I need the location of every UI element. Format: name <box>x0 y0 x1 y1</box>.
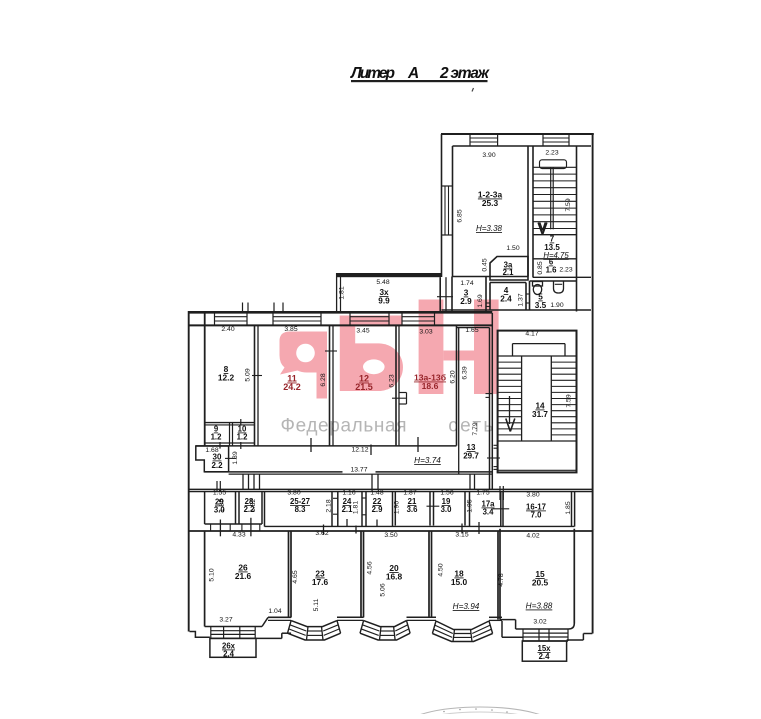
svg-text:4.65: 4.65 <box>292 570 299 583</box>
svg-text:1.90: 1.90 <box>394 501 401 514</box>
svg-text:1.2: 1.2 <box>211 433 223 442</box>
svg-text:H=3.38: H=3.38 <box>476 224 503 233</box>
svg-text:15.0: 15.0 <box>451 577 468 587</box>
svg-text:5.06: 5.06 <box>379 583 386 596</box>
svg-text:1.95: 1.95 <box>466 499 473 512</box>
svg-text:18.6: 18.6 <box>422 381 439 391</box>
svg-text:2.18: 2.18 <box>325 499 332 512</box>
svg-text:1.81: 1.81 <box>352 501 359 514</box>
svg-text:3.0: 3.0 <box>214 505 226 514</box>
svg-text:5.11: 5.11 <box>313 598 320 611</box>
svg-text:21.6: 21.6 <box>235 571 252 581</box>
svg-text:H=4.75: H=4.75 <box>543 251 569 260</box>
svg-text:2.4: 2.4 <box>500 295 512 304</box>
svg-text:4.17: 4.17 <box>525 331 538 338</box>
svg-text:2.9: 2.9 <box>460 297 472 306</box>
svg-text:1.37: 1.37 <box>517 293 524 306</box>
svg-text:3.80: 3.80 <box>287 490 300 497</box>
svg-text:1.56: 1.56 <box>440 490 453 497</box>
svg-text:1.85: 1.85 <box>565 501 572 514</box>
svg-text:9.9: 9.9 <box>378 296 390 305</box>
svg-text:5.10: 5.10 <box>208 568 215 581</box>
svg-text:25.3: 25.3 <box>482 198 499 208</box>
svg-text:3.80: 3.80 <box>526 492 539 499</box>
svg-text:29.7: 29.7 <box>463 452 479 461</box>
svg-text:1.65: 1.65 <box>465 327 478 334</box>
svg-text:6.23: 6.23 <box>388 374 395 387</box>
svg-text:2.9: 2.9 <box>372 505 384 514</box>
svg-text:2.2: 2.2 <box>244 505 256 514</box>
svg-text:7.0: 7.0 <box>531 511 543 520</box>
svg-text:6.20: 6.20 <box>449 370 456 383</box>
svg-text:6.28: 6.28 <box>320 373 327 386</box>
svg-text:Литер: Литер <box>350 65 395 82</box>
svg-text:1.75: 1.75 <box>476 490 489 497</box>
svg-text:13.77: 13.77 <box>350 466 367 473</box>
svg-text:5.09: 5.09 <box>245 368 252 381</box>
svg-text:4.02: 4.02 <box>526 533 539 540</box>
svg-text:4.50: 4.50 <box>437 563 444 576</box>
svg-text:3.62: 3.62 <box>315 530 328 537</box>
svg-text:7.59: 7.59 <box>565 198 572 211</box>
svg-text:2.1: 2.1 <box>503 268 515 277</box>
svg-text:6.85: 6.85 <box>456 209 463 222</box>
svg-text:4.78: 4.78 <box>498 573 505 586</box>
svg-text:7.79: 7.79 <box>472 422 479 435</box>
svg-text:31.7: 31.7 <box>532 410 548 419</box>
svg-text:А: А <box>407 65 419 82</box>
svg-text:2.23: 2.23 <box>559 267 572 274</box>
svg-text:24.2: 24.2 <box>283 382 301 392</box>
svg-text:20.5: 20.5 <box>532 578 549 588</box>
svg-text:2.40: 2.40 <box>221 326 234 333</box>
svg-text:1.2: 1.2 <box>237 433 249 442</box>
svg-text:3.45: 3.45 <box>356 328 369 335</box>
svg-text:0.85: 0.85 <box>537 261 544 274</box>
svg-text:16.8: 16.8 <box>386 572 403 582</box>
svg-text:1.81: 1.81 <box>338 286 345 299</box>
svg-text:3.5: 3.5 <box>535 301 547 310</box>
svg-text:1.04: 1.04 <box>268 608 281 615</box>
svg-text:2.23: 2.23 <box>545 150 558 157</box>
svg-text:H=3.74: H=3.74 <box>414 456 441 465</box>
svg-text:3.90: 3.90 <box>482 152 495 159</box>
svg-text:1.87: 1.87 <box>403 490 416 497</box>
svg-text:8.3: 8.3 <box>295 505 307 514</box>
svg-text:7.59: 7.59 <box>565 394 572 407</box>
svg-text:2.2: 2.2 <box>211 461 223 470</box>
svg-text:3.6: 3.6 <box>407 505 419 514</box>
svg-text:3.0: 3.0 <box>441 505 453 514</box>
svg-text:5.48: 5.48 <box>376 279 389 286</box>
svg-text:3.4: 3.4 <box>483 508 495 517</box>
svg-text:1.48: 1.48 <box>370 490 383 497</box>
svg-text:H=3.94: H=3.94 <box>453 602 480 611</box>
svg-text:3.50: 3.50 <box>384 532 397 539</box>
svg-text:12.12: 12.12 <box>351 447 368 454</box>
svg-text:1.69: 1.69 <box>477 294 484 307</box>
svg-text:Федеральная: Федеральная <box>281 416 407 437</box>
svg-text:1.90: 1.90 <box>550 302 563 309</box>
svg-text:3.15: 3.15 <box>455 532 468 539</box>
svg-text:21.5: 21.5 <box>355 382 373 392</box>
svg-text:4.56: 4.56 <box>366 561 373 574</box>
svg-text:2.4: 2.4 <box>539 652 551 661</box>
svg-text:1.6: 1.6 <box>546 266 558 275</box>
svg-text:6.39: 6.39 <box>461 366 468 379</box>
svg-text:12.2: 12.2 <box>218 373 235 383</box>
svg-text:1.39: 1.39 <box>232 451 239 464</box>
svg-text:0.45: 0.45 <box>481 258 488 271</box>
svg-text:1.55: 1.55 <box>213 490 226 497</box>
svg-text:3.02: 3.02 <box>533 619 546 626</box>
svg-text:H=3.88: H=3.88 <box>526 602 553 611</box>
svg-text:2 этаж: 2 этаж <box>439 65 491 82</box>
svg-text:1.50: 1.50 <box>506 245 519 252</box>
svg-text:3.85: 3.85 <box>284 326 297 333</box>
svg-text:2.1: 2.1 <box>342 505 354 514</box>
svg-text:2.4: 2.4 <box>223 650 235 659</box>
svg-text:1.16: 1.16 <box>342 490 355 497</box>
svg-text:1.74: 1.74 <box>460 280 473 287</box>
svg-text:3.27: 3.27 <box>219 617 232 624</box>
svg-text:3.03: 3.03 <box>419 329 432 336</box>
svg-text:17.6: 17.6 <box>312 577 329 587</box>
svg-text:4.33: 4.33 <box>232 532 245 539</box>
